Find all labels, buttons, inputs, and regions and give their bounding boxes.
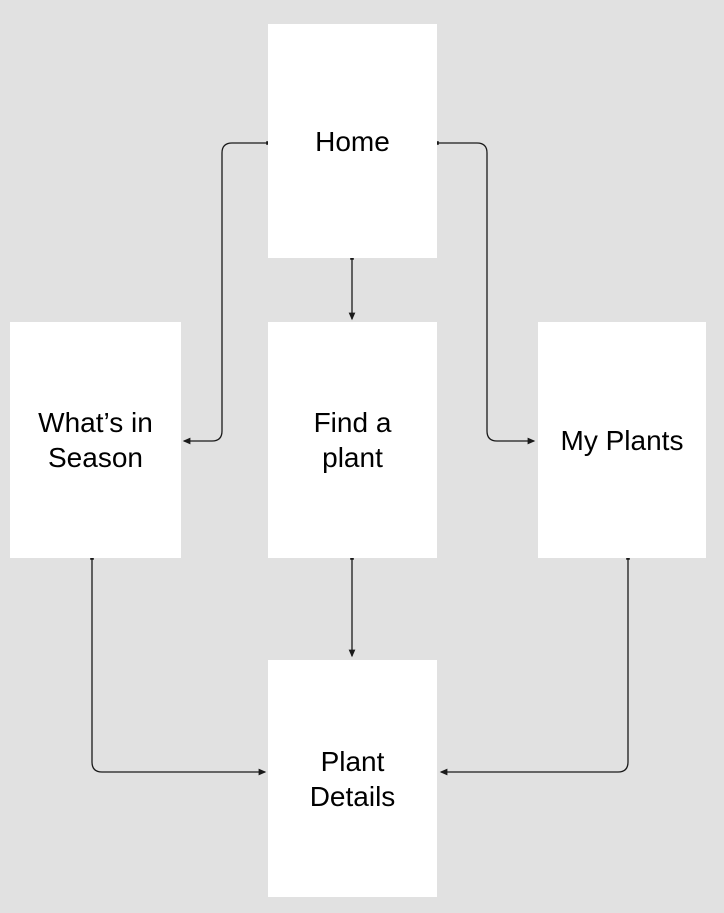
node-find-a-plant[interactable]: Find a plant: [268, 322, 437, 558]
node-find-a-plant-label: Find a plant: [314, 405, 392, 475]
node-whats-in-season-label: What’s in Season: [38, 405, 153, 475]
edge-whats-in-season-to-plant-details: [92, 558, 265, 772]
node-plant-details-label: Plant Details: [310, 744, 396, 814]
node-home-label: Home: [315, 124, 390, 159]
node-whats-in-season[interactable]: What’s in Season: [10, 322, 181, 558]
edge-my-plants-to-plant-details: [441, 558, 628, 772]
node-my-plants[interactable]: My Plants: [538, 322, 706, 558]
edge-home-to-whats-in-season: [184, 143, 268, 441]
flowchart-canvas: Home What’s in Season Find a plant My Pl…: [0, 0, 724, 913]
node-my-plants-label: My Plants: [561, 423, 684, 458]
edge-home-to-my-plants: [437, 143, 534, 441]
node-home[interactable]: Home: [268, 24, 437, 258]
node-plant-details[interactable]: Plant Details: [268, 660, 437, 897]
